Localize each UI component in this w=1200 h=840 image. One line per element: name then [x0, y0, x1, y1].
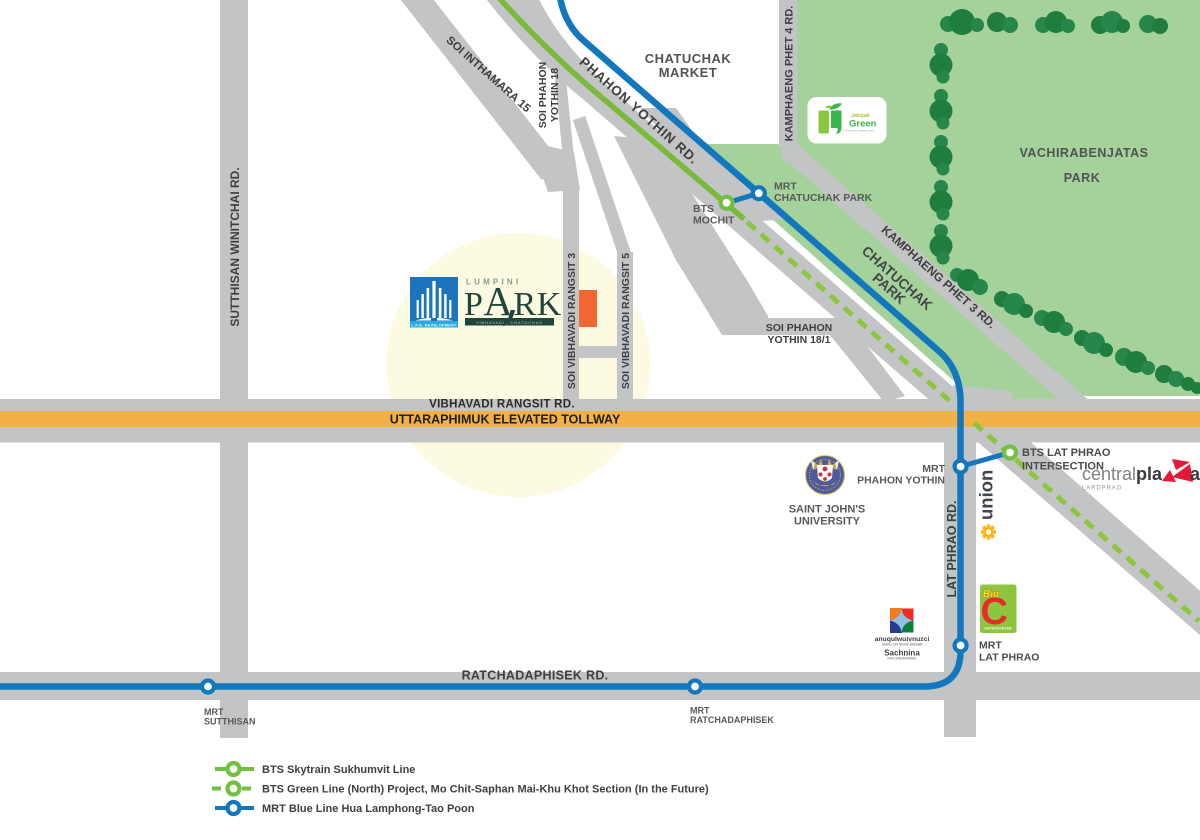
svg-text:BTS Green Line (North) Project: BTS Green Line (North) Project, Mo Chit-…	[262, 784, 709, 796]
svg-text:union: union	[976, 470, 997, 520]
svg-text:BTS LAT PHRAO: BTS LAT PHRAO	[1022, 447, 1111, 459]
svg-text:VACHIRABENJATAS: VACHIRABENJATAS	[1019, 146, 1148, 160]
svg-text:CHATUCHAK PARK: CHATUCHAK PARK	[774, 192, 873, 204]
svg-text:L.P.N. DEVELOPMENT: L.P.N. DEVELOPMENT	[411, 323, 457, 327]
svg-text:RATCHADAPHISEK: RATCHADAPHISEK	[888, 657, 918, 661]
svg-text:RATCHADAPHISEK RD.: RATCHADAPHISEK RD.	[462, 669, 609, 683]
svg-text:YOTHIN 18: YOTHIN 18	[549, 68, 561, 122]
svg-text:BTS Skytrain Sukhumvit Line: BTS Skytrain Sukhumvit Line	[262, 764, 415, 776]
svg-text:CHATUCHAK: CHATUCHAK	[645, 51, 732, 66]
svg-text:centralpla: centralpla	[1082, 464, 1163, 484]
svg-text:UNIVERSITY: UNIVERSITY	[794, 516, 861, 528]
svg-text:MRT: MRT	[979, 640, 1002, 652]
svg-text:a: a	[1190, 464, 1200, 484]
svg-text:MRT Blue Line Hua Lamphong-Tao: MRT Blue Line Hua Lamphong-Tao Poon	[262, 803, 475, 815]
svg-text:VIBHAVADI - CHATUCHAK: VIBHAVADI - CHATUCHAK	[476, 320, 543, 325]
svg-text:KAMPHAENG PHET 4 RD.: KAMPHAENG PHET 4 RD.	[784, 6, 796, 142]
svg-text:YOTHIN 18/1: YOTHIN 18/1	[767, 334, 830, 346]
svg-text:RATCHADAPHISEK: RATCHADAPHISEK	[690, 715, 774, 725]
svg-text:UTTARAPHIMUK ELEVATED TOLLWAY: UTTARAPHIMUK ELEVATED TOLLWAY	[390, 413, 621, 427]
svg-text:SOI VIBHAVADI RANGSIT 5: SOI VIBHAVADI RANGSIT 5	[620, 253, 632, 389]
svg-text:SAINT JOHN'S: SAINT JOHN'S	[789, 504, 866, 516]
svg-text:PHAHON YOTHIN: PHAHON YOTHIN	[857, 475, 945, 487]
svg-text:shop and market park: shop and market park	[845, 129, 875, 133]
svg-text:MRT: MRT	[922, 463, 945, 475]
svg-text:MRT: MRT	[690, 706, 710, 716]
svg-text:SUTTHISAN WINITCHAI RD.: SUTTHISAN WINITCHAI RD.	[228, 167, 242, 326]
svg-text:LAT PHRAO: LAT PHRAO	[979, 652, 1039, 664]
svg-text:BTS: BTS	[693, 203, 714, 215]
svg-text:MRT: MRT	[204, 707, 224, 717]
svg-text:LAT PHRAO RD.: LAT PHRAO RD.	[945, 501, 959, 598]
svg-text:MRT: MRT	[774, 181, 797, 193]
svg-text:VIBHAVADI RANGSIT RD.: VIBHAVADI RANGSIT RD.	[429, 399, 575, 411]
svg-text:SOI PHAHON: SOI PHAHON	[766, 322, 833, 334]
svg-text:MOCHIT: MOCHIT	[693, 215, 735, 227]
svg-text:PARK: PARK	[1064, 171, 1101, 185]
svg-text:SUPERCENTER: SUPERCENTER	[984, 627, 1012, 631]
svg-text:SOI VIBHAVADI RANGSIT 3: SOI VIBHAVADI RANGSIT 3	[566, 253, 578, 389]
svg-text:MARKET: MARKET	[659, 65, 718, 80]
svg-text:LARDPRAO: LARDPRAO	[1082, 486, 1122, 492]
svg-text:SOI PHAHON: SOI PHAHON	[537, 62, 549, 129]
svg-text:SUTTHISAN: SUTTHISAN	[204, 717, 256, 727]
svg-text:SUAN LUM NIGHT BAZAAR: SUAN LUM NIGHT BAZAAR	[882, 643, 924, 647]
